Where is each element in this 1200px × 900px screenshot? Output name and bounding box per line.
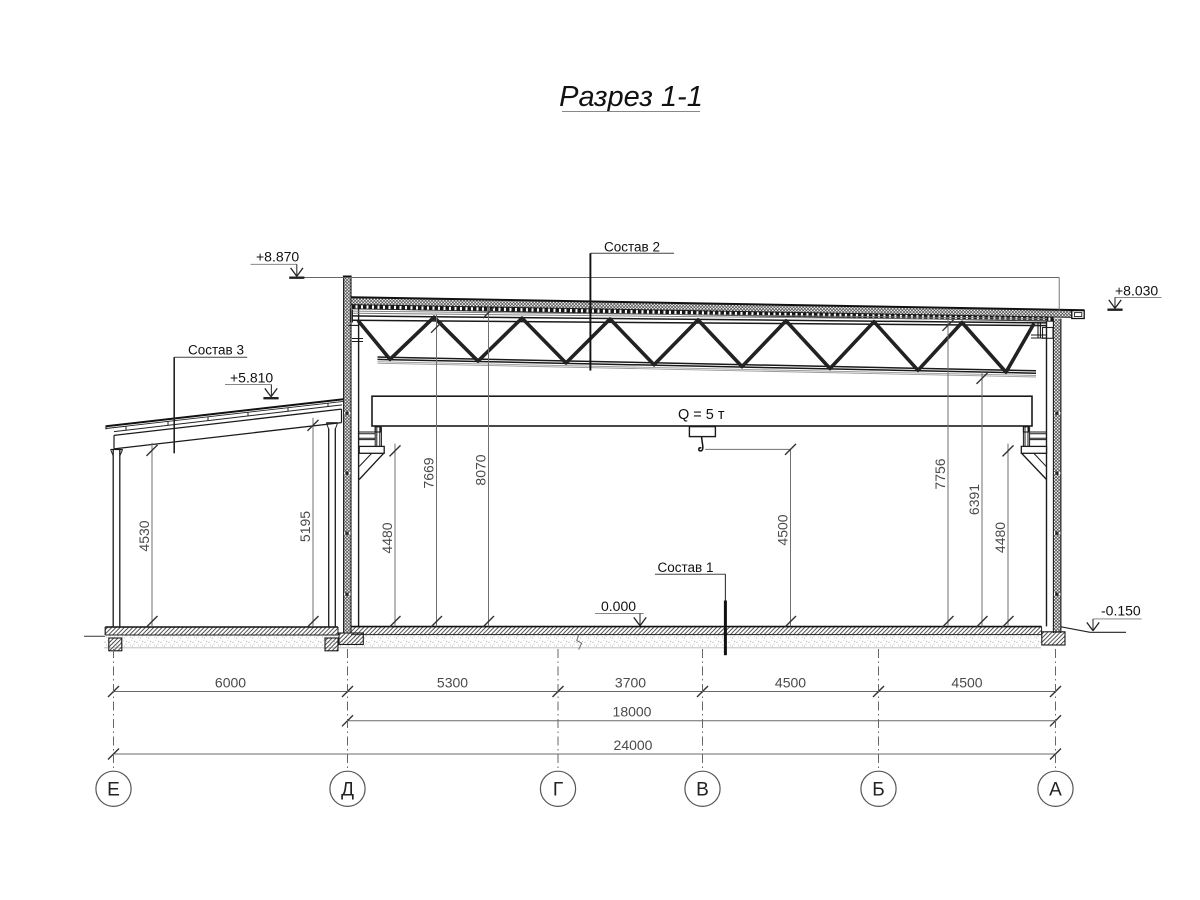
svg-text:6391: 6391 [966, 484, 982, 515]
svg-text:6000: 6000 [215, 675, 246, 691]
svg-text:+5.810: +5.810 [230, 369, 273, 385]
svg-text:4480: 4480 [992, 522, 1008, 553]
svg-text:4480: 4480 [379, 522, 395, 553]
svg-text:А: А [1049, 779, 1062, 800]
svg-text:3700: 3700 [615, 675, 646, 691]
svg-text:Е: Е [107, 779, 120, 800]
svg-text:5300: 5300 [437, 675, 468, 691]
svg-text:7756: 7756 [932, 458, 948, 489]
svg-text:4500: 4500 [775, 514, 791, 545]
svg-text:5195: 5195 [297, 511, 313, 542]
svg-text:Состав 2: Состав 2 [604, 239, 660, 254]
svg-text:0.000: 0.000 [601, 598, 636, 614]
svg-text:Q = 5 т: Q = 5 т [678, 407, 725, 423]
svg-text:+8.870: +8.870 [256, 249, 299, 265]
svg-text:Д: Д [341, 779, 354, 800]
svg-text:24000: 24000 [614, 737, 653, 753]
svg-text:В: В [696, 779, 709, 800]
svg-text:+8.030: +8.030 [1115, 282, 1158, 298]
svg-text:8070: 8070 [473, 454, 489, 485]
svg-text:7669: 7669 [421, 457, 437, 488]
svg-text:4500: 4500 [775, 675, 806, 691]
svg-text:Б: Б [872, 779, 884, 800]
svg-text:Состав 1: Состав 1 [658, 560, 714, 575]
svg-text:Состав 3: Состав 3 [188, 343, 244, 358]
svg-text:4500: 4500 [951, 675, 982, 691]
svg-text:4530: 4530 [136, 520, 152, 551]
svg-text:-0.150: -0.150 [1101, 602, 1141, 618]
svg-text:Разрез 1-1: Разрез 1-1 [559, 81, 703, 113]
svg-text:18000: 18000 [613, 704, 652, 720]
svg-text:Г: Г [553, 779, 563, 800]
